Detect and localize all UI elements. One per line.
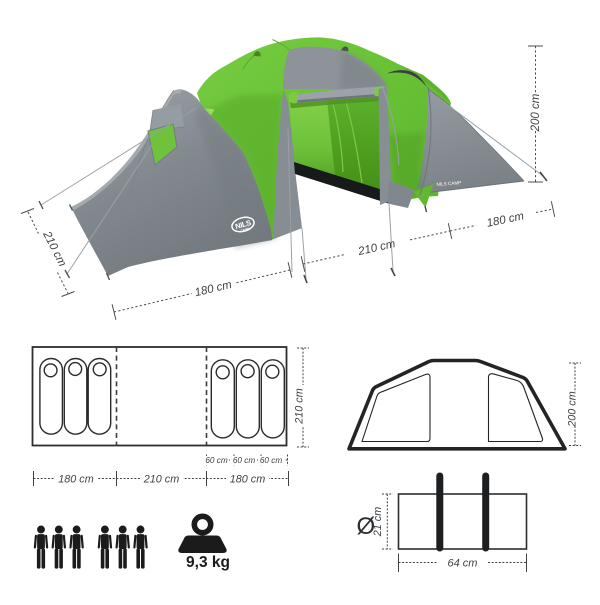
svg-text:210 cm: 210 cm bbox=[294, 388, 306, 424]
svg-text:64 cm: 64 cm bbox=[448, 558, 478, 570]
svg-text:21 cm: 21 cm bbox=[372, 507, 384, 537]
svg-text:60 cm: 60 cm bbox=[260, 456, 282, 465]
svg-text:180 cm: 180 cm bbox=[58, 474, 93, 486]
svg-text:200 cm: 200 cm bbox=[567, 391, 579, 427]
svg-text:180 cm: 180 cm bbox=[230, 474, 265, 486]
svg-text:60 cm: 60 cm bbox=[205, 456, 227, 465]
svg-text:60 cm: 60 cm bbox=[233, 456, 255, 465]
svg-text:200 cm: 200 cm bbox=[530, 93, 542, 132]
svg-text:210 cm: 210 cm bbox=[143, 474, 179, 486]
svg-text:9,3 kg: 9,3 kg bbox=[186, 554, 230, 571]
